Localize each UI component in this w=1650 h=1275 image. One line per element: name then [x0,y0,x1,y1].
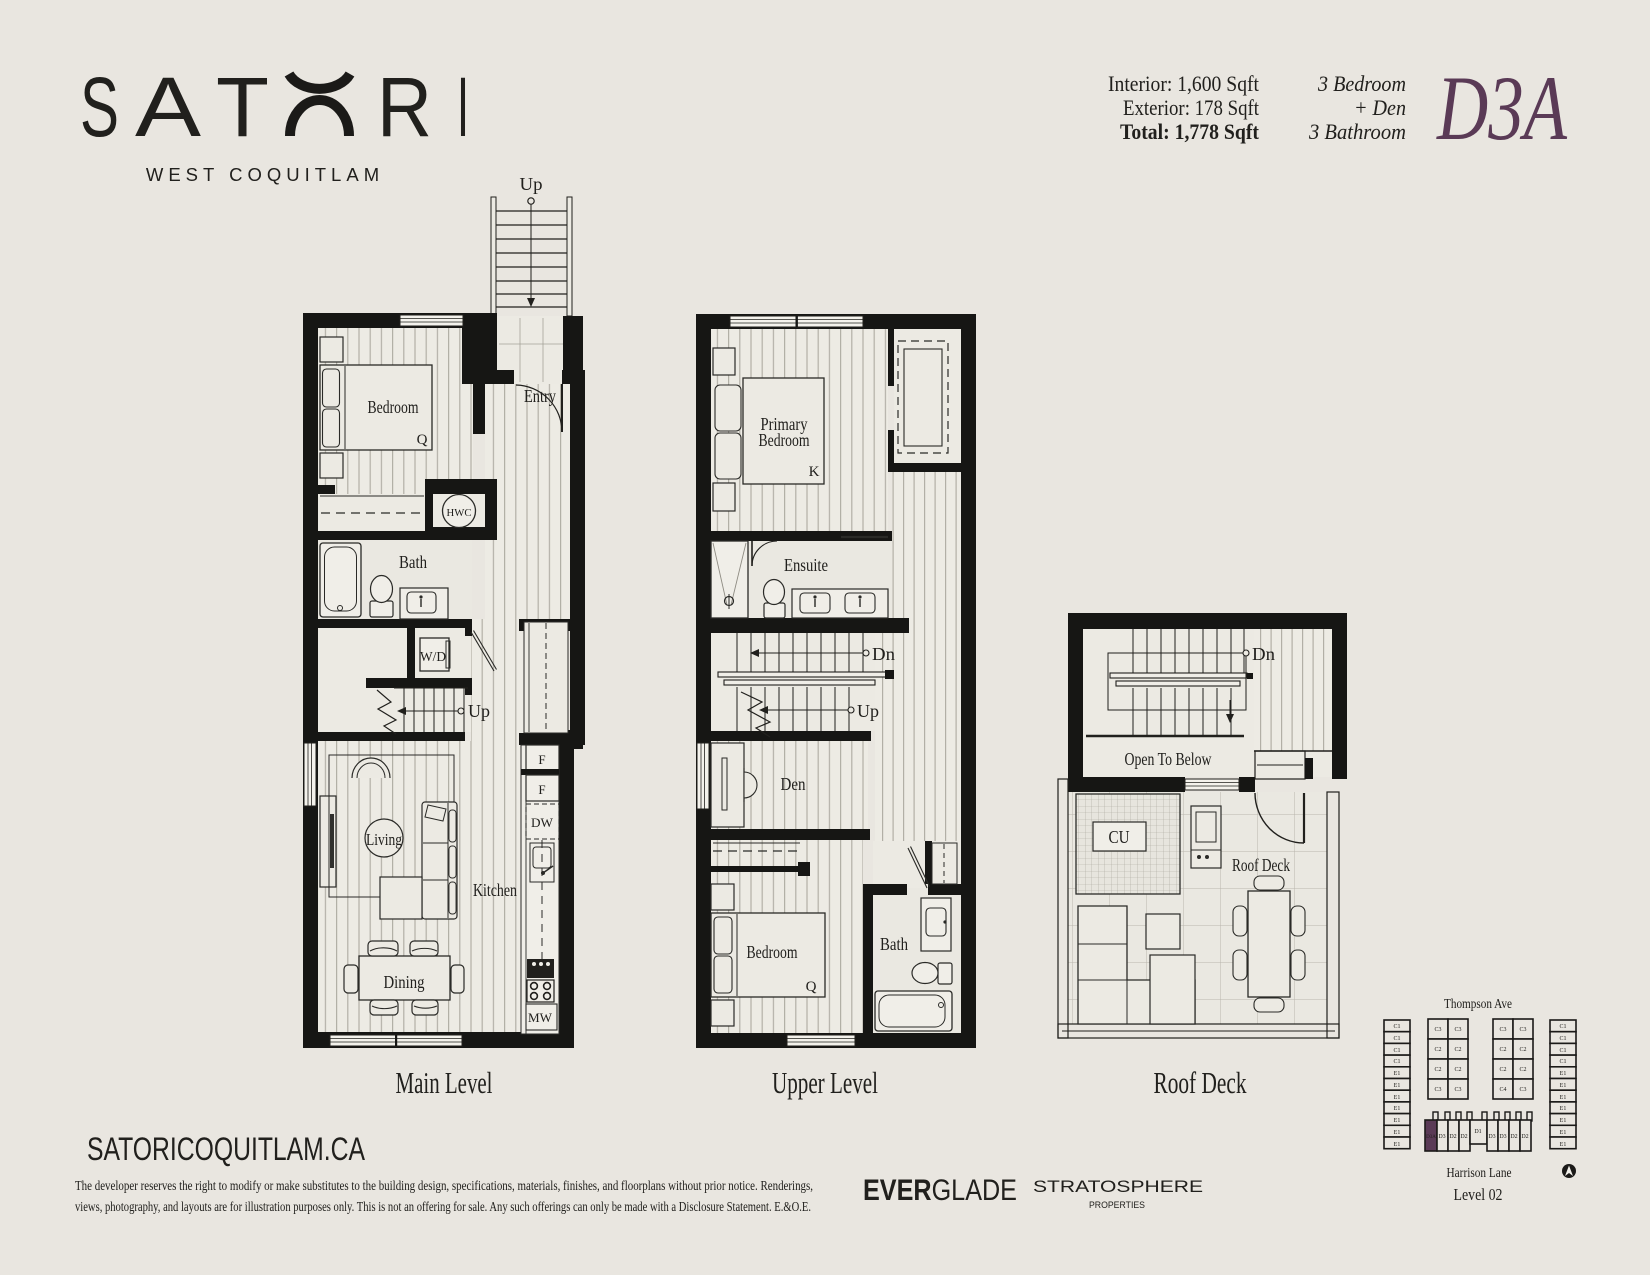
svg-text:Bedroom: Bedroom [368,397,419,417]
svg-text:W/D: W/D [420,649,446,664]
svg-text:I: I [457,60,469,154]
svg-text:E1: E1 [1560,1071,1567,1077]
svg-text:F: F [538,752,545,767]
svg-text:CU: CU [1109,827,1130,847]
svg-text:WEST COQUITLAM: WEST COQUITLAM [146,164,384,185]
svg-text:Entry: Entry [524,386,556,406]
svg-text:E1: E1 [1394,1095,1401,1101]
svg-text:Den: Den [781,774,806,794]
svg-text:D3: D3 [1499,1134,1506,1140]
svg-text:Interior: 1,600 Sqft: Interior: 1,600 Sqft [1108,71,1259,96]
svg-text:C1: C1 [1393,1048,1400,1054]
svg-text:E1: E1 [1560,1142,1567,1148]
svg-text:Living: Living [366,830,402,849]
svg-text:C3: C3 [1499,1027,1506,1033]
svg-text:SATORICOQUITLAM.CA: SATORICOQUITLAM.CA [87,1131,366,1167]
svg-text:C3: C3 [1434,1087,1441,1093]
svg-text:A: A [135,60,201,154]
svg-text:K: K [809,464,820,480]
svg-text:Up: Up [520,174,543,194]
svg-text:T: T [216,60,269,154]
svg-text:D3: D3 [1438,1134,1445,1140]
svg-text:E1: E1 [1560,1095,1567,1101]
svg-text:Dn: Dn [1252,644,1275,664]
svg-text:Dining: Dining [384,972,425,992]
svg-text:Upper Level: Upper Level [772,1065,878,1100]
svg-text:3 Bedroom: 3 Bedroom [1317,71,1406,96]
svg-text:Open To Below: Open To Below [1125,749,1212,769]
svg-text:HWC: HWC [447,507,472,519]
svg-text:E1: E1 [1560,1130,1567,1136]
svg-text:C1: C1 [1393,1059,1400,1065]
svg-text:Bath: Bath [399,552,427,572]
svg-text:C1: C1 [1559,1036,1566,1042]
svg-text:C3: C3 [1434,1027,1441,1033]
svg-text:C1: C1 [1559,1059,1566,1065]
svg-text:E1: E1 [1394,1071,1401,1077]
svg-text:views, photography, and layout: views, photography, and layouts are for … [75,1199,811,1214]
svg-text:Main Level: Main Level [396,1065,493,1100]
svg-text:Exterior: 178 Sqft: Exterior: 178 Sqft [1123,95,1259,120]
svg-text:Roof Deck: Roof Deck [1154,1065,1247,1100]
svg-text:+ Den: + Den [1354,95,1406,120]
svg-text:3 Bathroom: 3 Bathroom [1308,119,1406,144]
svg-text:Q: Q [806,979,817,995]
svg-text:R: R [377,60,432,154]
svg-text:C3: C3 [1454,1027,1461,1033]
svg-text:C1: C1 [1393,1024,1400,1030]
svg-text:C2: C2 [1434,1047,1441,1053]
svg-text:STRATOSPHERE: STRATOSPHERE [1033,1178,1203,1196]
svg-text:PROPERTIES: PROPERTIES [1089,1200,1145,1210]
svg-text:E1: E1 [1560,1083,1567,1089]
svg-text:Harrison Lane: Harrison Lane [1447,1166,1512,1181]
svg-text:Up: Up [468,701,490,721]
svg-text:Ensuite: Ensuite [784,555,828,575]
svg-text:C2: C2 [1519,1047,1526,1053]
svg-text:C2: C2 [1499,1067,1506,1073]
svg-text:Q: Q [417,432,428,448]
svg-text:DW: DW [531,815,554,830]
svg-text:Kitchen: Kitchen [473,880,517,900]
svg-text:C3: C3 [1519,1087,1526,1093]
svg-text:Thompson Ave: Thompson Ave [1444,997,1512,1012]
svg-text:S: S [80,60,119,154]
svg-text:C2: C2 [1499,1047,1506,1053]
svg-text:Up: Up [857,701,879,721]
svg-text:Roof Deck: Roof Deck [1232,855,1290,875]
svg-text:D3A: D3A [1426,1135,1436,1140]
svg-text:D2: D2 [1510,1134,1517,1140]
svg-text:Level 02: Level 02 [1454,1185,1503,1204]
svg-text:D1: D1 [1474,1129,1481,1135]
svg-text:E1: E1 [1560,1118,1567,1124]
svg-text:E1: E1 [1394,1106,1401,1112]
svg-text:E1: E1 [1394,1118,1401,1124]
svg-text:The developer reserves the rig: The developer reserves the right to modi… [75,1178,813,1193]
svg-text:C1: C1 [1393,1036,1400,1042]
svg-text:EVERGLADE: EVERGLADE [863,1174,1017,1207]
svg-text:C2: C2 [1434,1067,1441,1073]
svg-text:D3: D3 [1488,1134,1495,1140]
svg-text:C2: C2 [1454,1067,1461,1073]
svg-text:C4: C4 [1499,1087,1506,1093]
svg-text:E1: E1 [1394,1130,1401,1136]
svg-text:D2: D2 [1449,1134,1456,1140]
svg-text:E1: E1 [1394,1142,1401,1148]
svg-text:D2: D2 [1521,1134,1528,1140]
svg-text:C1: C1 [1559,1024,1566,1030]
svg-text:F: F [538,782,545,797]
svg-text:Bedroom: Bedroom [747,942,798,962]
svg-text:C3: C3 [1519,1027,1526,1033]
svg-text:Total: 1,778 Sqft: Total: 1,778 Sqft [1120,119,1260,144]
svg-text:C1: C1 [1559,1048,1566,1054]
svg-text:Dn: Dn [872,644,895,664]
svg-text:D3A: D3A [1435,57,1567,159]
svg-text:C3: C3 [1454,1087,1461,1093]
svg-text:C2: C2 [1454,1047,1461,1053]
svg-text:D2: D2 [1460,1134,1467,1140]
svg-text:C2: C2 [1519,1067,1526,1073]
svg-text:E1: E1 [1560,1106,1567,1112]
svg-text:Bath: Bath [880,934,908,954]
svg-text:E1: E1 [1394,1083,1401,1089]
svg-text:MW: MW [528,1010,553,1025]
svg-text:Bedroom: Bedroom [759,430,810,450]
